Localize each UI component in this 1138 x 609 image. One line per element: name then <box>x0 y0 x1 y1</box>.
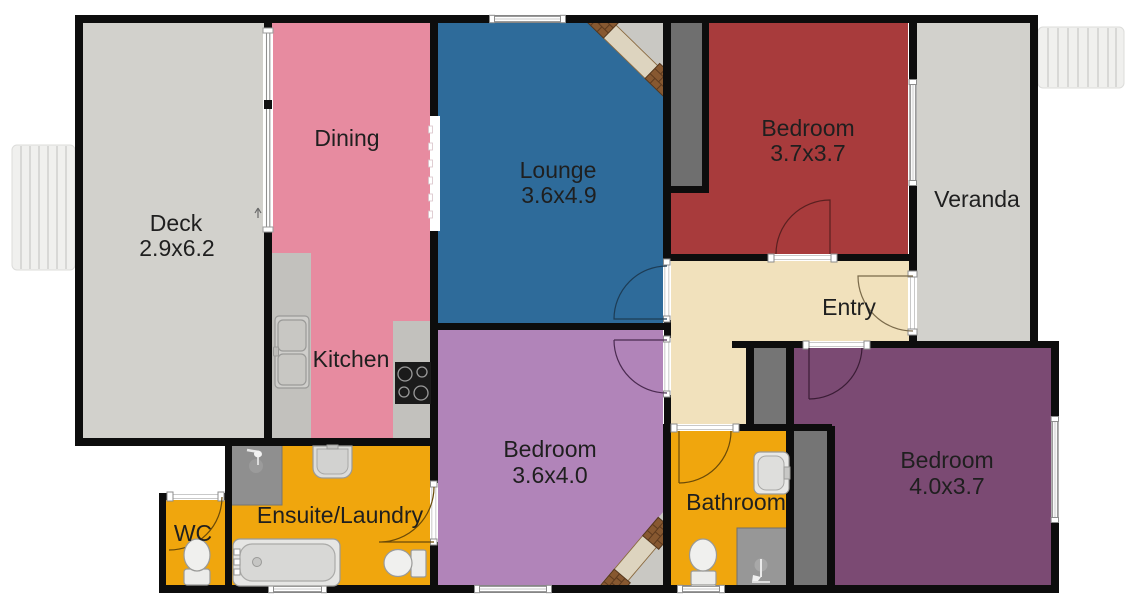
svg-text:WC: WC <box>174 520 212 546</box>
svg-text:Kitchen: Kitchen <box>313 346 390 372</box>
svg-text:Dining: Dining <box>314 125 379 151</box>
svg-text:Entry: Entry <box>822 294 876 320</box>
svg-text:3.6x4.9: 3.6x4.9 <box>521 182 596 208</box>
svg-text:3.6x4.0: 3.6x4.0 <box>512 462 587 488</box>
svg-text:Bedroom: Bedroom <box>900 447 993 473</box>
svg-text:Bedroom: Bedroom <box>761 115 854 141</box>
svg-text:2.9x6.2: 2.9x6.2 <box>139 235 214 261</box>
svg-text:Deck: Deck <box>150 210 203 236</box>
svg-text:Ensuite/Laundry: Ensuite/Laundry <box>257 502 424 528</box>
svg-text:Lounge: Lounge <box>520 157 597 183</box>
svg-text:3.7x3.7: 3.7x3.7 <box>770 140 845 166</box>
svg-text:Bathroom: Bathroom <box>686 489 786 515</box>
svg-text:4.0x3.7: 4.0x3.7 <box>909 473 984 499</box>
svg-text:Bedroom: Bedroom <box>503 436 596 462</box>
svg-text:Veranda: Veranda <box>934 186 1020 212</box>
